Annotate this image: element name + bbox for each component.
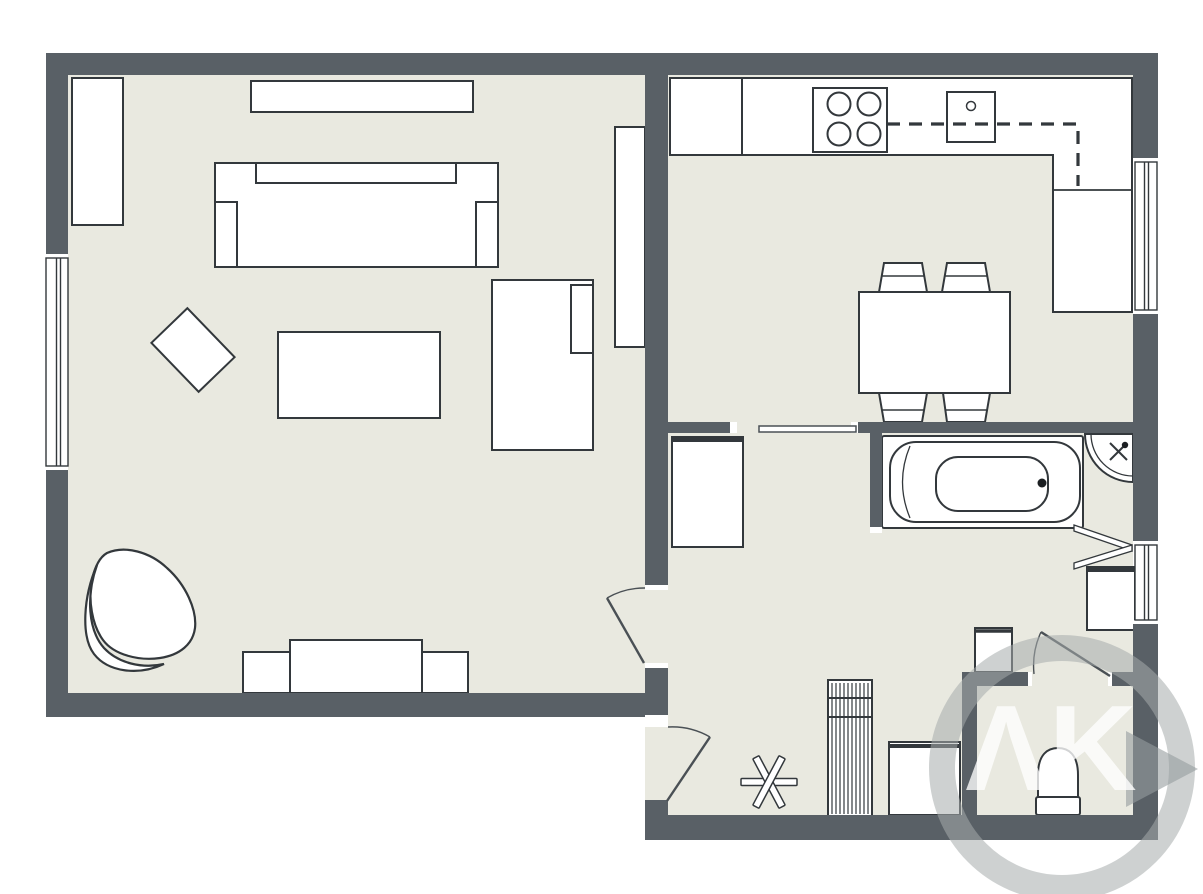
- jamb: [645, 663, 668, 668]
- jamb: [645, 715, 668, 727]
- dining-chair-icon: [943, 393, 990, 422]
- floor-plan-canvas: ΛK: [0, 0, 1203, 894]
- wall-living-bottom: [46, 693, 668, 717]
- burner: [858, 123, 881, 146]
- shower-head-dot: [1122, 442, 1128, 448]
- toilet-bowl: [1038, 748, 1078, 797]
- wall-wc-top-left: [962, 672, 1030, 686]
- radiator-body: [828, 680, 872, 817]
- hall-closet-icon: [1087, 567, 1135, 630]
- coffee-table-icon: [278, 332, 440, 418]
- chaise-pillow: [571, 285, 593, 353]
- wall-hall-bottom: [645, 815, 1158, 840]
- sofa-armrest-left: [215, 202, 237, 267]
- bathtub-basin: [936, 457, 1048, 511]
- washing-machine-body: [889, 742, 960, 815]
- sink-basin: [947, 92, 995, 142]
- toilet-icon: [1036, 748, 1080, 815]
- wall-top: [46, 53, 1158, 75]
- bathtub-icon: [882, 436, 1083, 528]
- toilet-tank: [1036, 797, 1080, 815]
- sink-icon: [947, 92, 995, 142]
- dining-chair-icon: [879, 263, 927, 292]
- sofa-icon: [215, 163, 498, 267]
- jamb: [870, 527, 882, 533]
- wall-left-lower: [46, 466, 68, 717]
- wall-shelf-icon: [251, 81, 473, 112]
- sliding-door-icon: [759, 426, 856, 432]
- hall-closet-body: [1087, 567, 1135, 630]
- wall-divider-upper: [645, 73, 668, 585]
- jamb: [645, 585, 668, 590]
- burner: [858, 93, 881, 116]
- wall-wc-top-right: [1112, 672, 1133, 686]
- cooktop-icon: [813, 88, 887, 152]
- wall-left-upper: [46, 53, 68, 258]
- dining-chair-icon: [942, 263, 990, 292]
- burner: [828, 123, 851, 146]
- window-left-icon: [46, 258, 68, 466]
- living-door-opening: [645, 590, 668, 663]
- wall-right-mid: [1133, 310, 1158, 545]
- sofa-back-cushion: [256, 163, 456, 183]
- washing-machine-icon: [889, 742, 960, 815]
- wc-door-opening: [1032, 672, 1108, 686]
- bookcase-icon: [72, 78, 123, 225]
- entry-door-opening: [645, 727, 668, 800]
- dining-table-icon: [859, 292, 1010, 393]
- floor-plan: ΛK: [0, 0, 1203, 894]
- wall-kitchen-bottom-left: [668, 422, 732, 433]
- wall-wc-left: [962, 672, 977, 815]
- window-kitchen-icon: [1135, 162, 1157, 310]
- sofa-armrest-right: [476, 202, 498, 267]
- faucet-icon: [967, 102, 976, 111]
- dining-chair-icon: [879, 393, 927, 422]
- drain-icon: [1038, 479, 1047, 488]
- window-hall-icon: [1135, 545, 1157, 620]
- radiator-icon: [828, 680, 872, 817]
- chaise-longue-icon: [492, 280, 593, 450]
- burner: [828, 93, 851, 116]
- wash-basin-body: [975, 628, 1012, 672]
- wash-basin-icon: [975, 628, 1012, 672]
- jamb: [1028, 672, 1032, 686]
- wall-right-lower: [1133, 620, 1158, 840]
- tv-icon: [290, 640, 422, 693]
- wardrobe-icon: [672, 437, 743, 547]
- wall-right-upper: [1133, 53, 1158, 162]
- wall-divider-mid: [645, 668, 668, 715]
- wall-kitchen-bottom-right: [857, 422, 1133, 433]
- wall-bathroom-left: [870, 433, 882, 527]
- jamb: [730, 422, 737, 433]
- wardrobe-body: [672, 437, 743, 547]
- narrow-shelf-icon: [615, 127, 645, 347]
